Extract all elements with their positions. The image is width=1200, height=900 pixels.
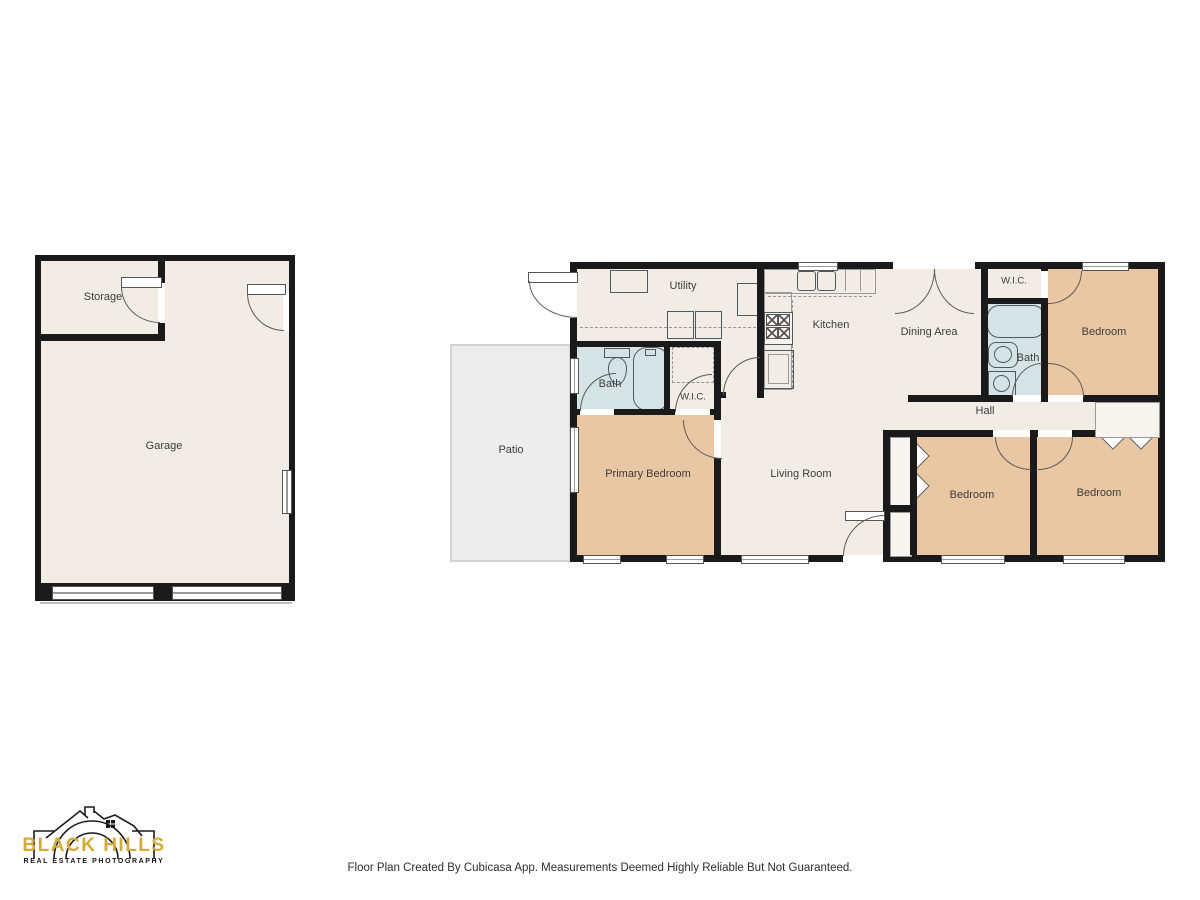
sink (994, 346, 1012, 363)
kitchen-sink (817, 271, 836, 291)
utility-cabinet (610, 270, 648, 293)
garage-door (172, 586, 282, 600)
wall (910, 437, 917, 555)
door-opening (843, 555, 883, 562)
faucet (645, 349, 656, 356)
wall (883, 430, 993, 437)
room-label-utility: Utility (670, 280, 697, 292)
room-label-patio: Patio (498, 444, 523, 456)
wall (41, 334, 165, 341)
wall (664, 341, 670, 411)
washer (667, 311, 694, 339)
refrigerator (763, 350, 794, 389)
room-label-bedroom-bottom-right: Bedroom (1077, 487, 1122, 499)
wall (1030, 430, 1038, 437)
room-label-bath-left: Bath (599, 378, 622, 390)
room-label-wic-left: W.I.C. (680, 392, 706, 403)
room-label-bedroom-bottom-middle: Bedroom (950, 489, 995, 501)
garage-door (52, 586, 154, 600)
window (798, 262, 838, 271)
door-opening (893, 262, 975, 269)
closet (1095, 402, 1160, 438)
cabinet-divider (845, 270, 846, 291)
patio-slider (570, 427, 579, 493)
wall (981, 262, 988, 402)
stove-burner (766, 314, 778, 326)
window (1082, 262, 1129, 271)
wall (883, 505, 917, 512)
wall (883, 437, 890, 555)
room-label-wic-right: W.I.C. (1001, 276, 1027, 287)
wall (1041, 395, 1048, 402)
wall (981, 298, 1048, 304)
wall (1083, 395, 1158, 402)
cabinet-divider (860, 270, 861, 291)
window (282, 470, 292, 514)
room-label-primary-bedroom: Primary Bedroom (605, 468, 691, 480)
room-label-storage: Storage (84, 291, 123, 303)
window (1063, 555, 1125, 564)
utility-cabinet (737, 283, 758, 316)
room-label-garage: Garage (146, 440, 183, 452)
window (941, 555, 1005, 564)
garage-door-track (40, 602, 292, 604)
door-arc (529, 281, 577, 318)
door-opening (1041, 271, 1048, 298)
window (741, 555, 809, 564)
stove-burner (778, 314, 790, 326)
dryer (695, 311, 722, 339)
wall (908, 395, 1013, 402)
upper-cabinet-line (768, 296, 872, 297)
window (583, 555, 621, 564)
room-label-living-room: Living Room (770, 468, 831, 480)
wall (1072, 430, 1095, 437)
closet (890, 512, 912, 557)
wall (614, 409, 675, 415)
toilet (993, 375, 1010, 392)
kitchen-sink (797, 271, 816, 291)
room-label-hall: Hall (976, 405, 995, 417)
closet (890, 437, 912, 507)
wall (1030, 437, 1037, 555)
room-label-bedroom-top-right: Bedroom (1082, 326, 1127, 338)
room-label-kitchen: Kitchen (813, 319, 850, 331)
bathtub (987, 305, 1045, 338)
door-opening (1038, 430, 1072, 437)
room-label-bath-right: Bath (1017, 352, 1040, 364)
window (666, 555, 704, 564)
floor-plan-canvas: Patio Storage Garage (0, 0, 1200, 900)
logo-title: BLACK HILLS (18, 835, 170, 857)
door-opening (993, 430, 1030, 437)
stove-burner (766, 327, 778, 339)
footer-disclaimer: Floor Plan Created By Cubicasa App. Meas… (0, 862, 1200, 874)
wall (714, 341, 721, 416)
window (570, 358, 579, 394)
room-label-dining: Dining Area (901, 326, 958, 338)
stove-burner (778, 327, 790, 339)
wall (577, 341, 720, 347)
